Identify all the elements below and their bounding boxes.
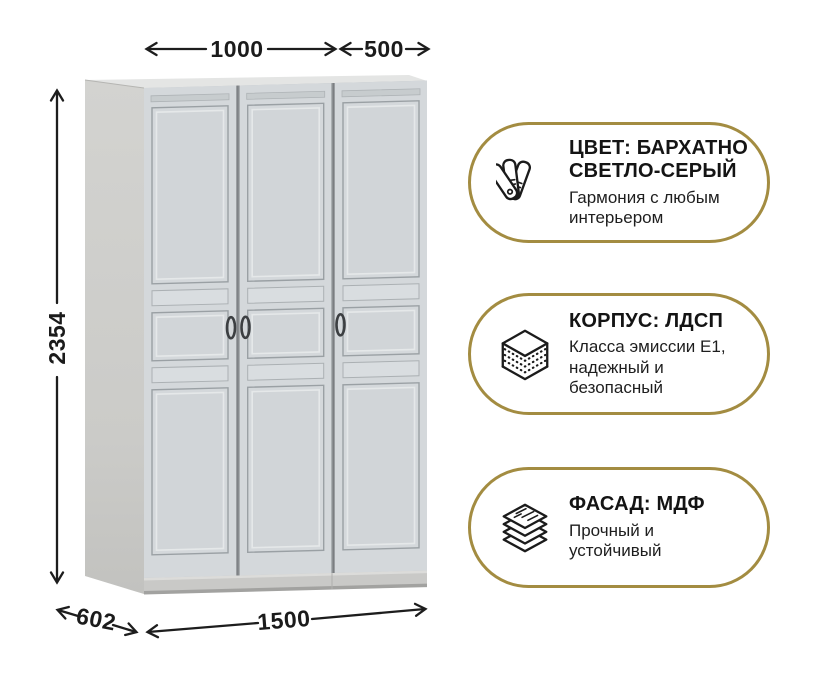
dim-label-top-width-right: 500 [364, 36, 404, 62]
color-swatches-icon [496, 154, 554, 212]
badge-facade-material-title: ФАСАД: МДФ [569, 493, 705, 516]
feature-badge-body-material: КОРПУС: ЛДСП Класса эмиссии E1, надежный… [468, 293, 770, 415]
feature-badge-color: ЦВЕТ: БАРХАТНО СВЕТЛО-СЕРЫЙ Гармония с л… [468, 122, 770, 243]
badge-color-title: ЦВЕТ: БАРХАТНО СВЕТЛО-СЕРЫЙ [569, 137, 748, 184]
dim-label-height: 2354 [44, 311, 70, 364]
door-middle [240, 83, 332, 575]
mdf-sheets-icon [496, 499, 554, 557]
badge-body-material-title: КОРПУС: ЛДСП [569, 310, 726, 333]
infographic-canvas: 1000 500 2354 602 1500 [0, 0, 816, 700]
chipboard-layers-icon [496, 325, 554, 383]
badge-color-subtitle: Гармония с любым интерьером [569, 188, 748, 229]
wardrobe [85, 75, 427, 595]
dim-label-total-width: 1500 [256, 605, 311, 635]
wardrobe-side-panel [85, 80, 144, 594]
dim-label-depth: 602 [74, 602, 118, 635]
door-left [144, 86, 236, 578]
badge-body-material-subtitle: Класса эмиссии E1, надежный и безопасный [569, 337, 726, 398]
feature-badge-facade-material: ФАСАД: МДФ Прочный и устойчивый [468, 467, 770, 588]
door-right [335, 81, 427, 573]
dim-label-top-width-left: 1000 [210, 36, 263, 62]
badge-facade-material-subtitle: Прочный и устойчивый [569, 521, 705, 562]
